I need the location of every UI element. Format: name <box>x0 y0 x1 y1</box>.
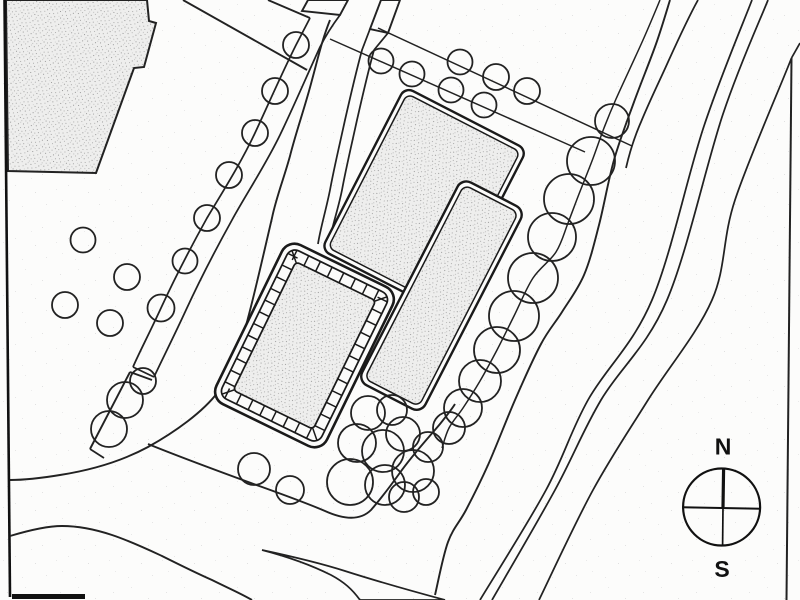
svg-text:S: S <box>714 556 729 582</box>
svg-text:N: N <box>715 434 732 460</box>
